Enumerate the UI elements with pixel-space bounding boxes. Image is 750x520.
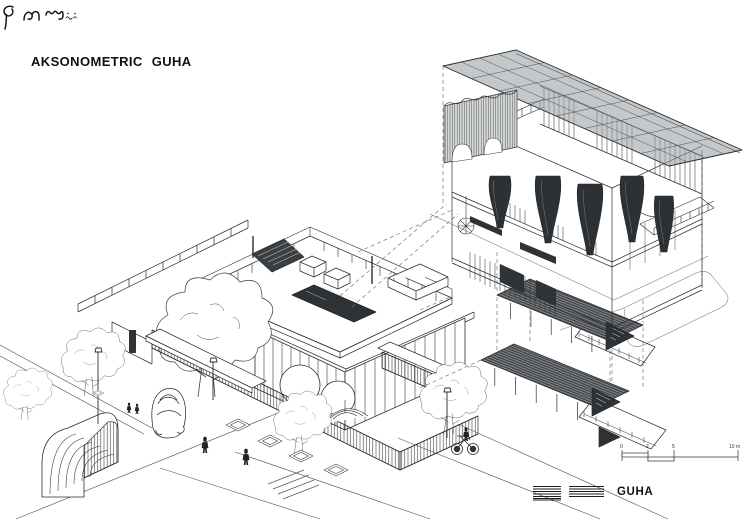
quonset-hut: [42, 413, 118, 497]
axonometric-drawing: 0 2 5 10 m: [0, 0, 750, 520]
scale-label: 10 m: [729, 444, 740, 450]
drawing-sheet: 0 2 5 10 m AKSONOMETRIC GUHA GUHA: [0, 0, 750, 520]
planter: [258, 435, 282, 447]
planter: [324, 464, 348, 476]
pedestrian: [202, 437, 209, 453]
tree: [4, 368, 53, 420]
pedestrian: [243, 449, 250, 465]
brand-text: GUHA: [617, 486, 653, 498]
pedestrian: [127, 403, 131, 413]
tree: [61, 328, 125, 396]
planter: [289, 450, 313, 462]
scale-bar: 0 2 5 10 m: [620, 444, 740, 461]
planter: [92, 390, 104, 396]
section-wall: [444, 90, 517, 163]
page-title: AKSONOMETRIC GUHA: [31, 54, 192, 69]
credits-block: [569, 486, 604, 498]
script-logo: [0, 0, 78, 34]
credits-block: [533, 486, 561, 501]
scale-label: 0: [620, 444, 623, 450]
car: [152, 388, 186, 438]
scale-label: 2: [646, 444, 649, 450]
left-compound: [4, 220, 488, 497]
pedestrian: [135, 404, 139, 414]
planter: [226, 419, 250, 431]
scale-label: 5: [672, 444, 675, 450]
cave-columns: [489, 176, 674, 255]
